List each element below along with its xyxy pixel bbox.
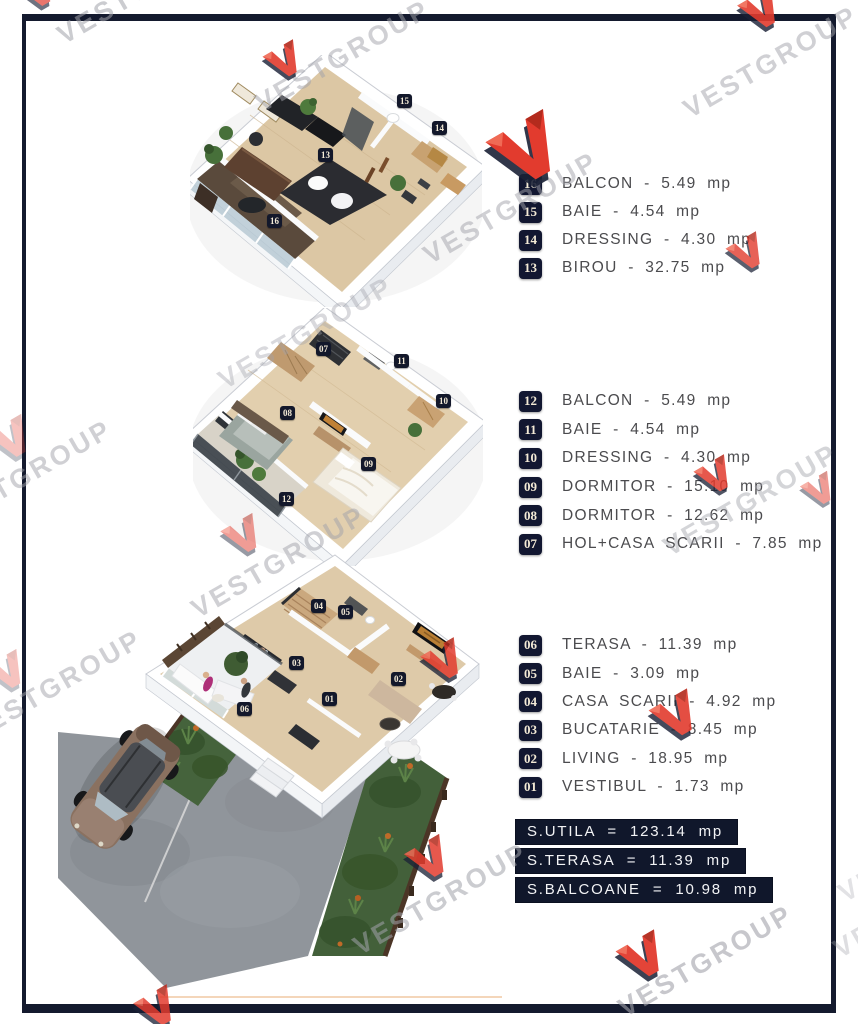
room-label: BAIE - 4.54 mp xyxy=(562,203,700,221)
legend-ground-floor: 06 TERASA - 11.39 mp 05 BAIE - 3.09 mp 0… xyxy=(519,631,776,801)
floor-plan-upper: 13 14 15 16 xyxy=(190,55,482,307)
watermark-text: VESTGROUP xyxy=(678,0,858,124)
room-label: DRESSING - 4.30 mp xyxy=(562,449,751,467)
room-number-badge: 01 xyxy=(519,777,542,798)
room-label: VESTIBUL - 1.73 mp xyxy=(562,778,745,796)
room-label: BUCATARIE - 8.45 mp xyxy=(562,721,758,739)
watermark-text: VESTGROUP xyxy=(828,840,858,964)
room-number-badge: 03 xyxy=(519,720,542,741)
legend-row: 03 BUCATARIE - 8.45 mp xyxy=(519,716,776,744)
room-number-badge: 10 xyxy=(519,448,542,469)
watermark-text: VESTGROUP xyxy=(613,899,798,1023)
vestgroup-logo-icon xyxy=(0,414,41,471)
room-number-badge: 09 xyxy=(519,477,542,498)
room-number-badge: 15 xyxy=(519,202,542,223)
watermark-text: VESTGROUP xyxy=(52,0,237,50)
room-label: LIVING - 18.95 mp xyxy=(562,750,728,768)
watermark-text: VESTGROUP xyxy=(833,784,858,908)
room-number-badge: 02 xyxy=(519,748,542,769)
flyer-page: 13 14 15 16 xyxy=(0,0,858,1024)
legend-upper-floor: 16 BALCON - 5.49 mp 15 BAIE - 4.54 mp 14… xyxy=(519,170,751,282)
room-marker-07: 07 xyxy=(316,342,331,356)
room-marker-15: 15 xyxy=(397,94,412,108)
room-marker-08: 08 xyxy=(280,406,295,420)
room-label: DORMITOR - 12.62 mp xyxy=(562,507,764,525)
legend-row: 04 CASA SCARII - 4.92 mp xyxy=(519,688,776,716)
room-label: BAIE - 3.09 mp xyxy=(562,665,700,683)
legend-row: 05 BAIE - 3.09 mp xyxy=(519,659,776,687)
room-marker-11: 11 xyxy=(394,354,409,368)
legend-row: 01 VESTIBUL - 1.73 mp xyxy=(519,773,776,801)
legend-row: 10 DRESSING - 4.30 mp xyxy=(519,444,823,473)
vestgroup-logo-icon xyxy=(11,0,64,19)
room-marker-01: 01 xyxy=(322,692,337,706)
watermark-text: VESTGROUP xyxy=(0,414,117,538)
legend-row: 12 BALCON - 5.49 mp xyxy=(519,387,823,416)
room-label: CASA SCARII - 4.92 mp xyxy=(562,693,776,711)
room-marker-02: 02 xyxy=(391,672,406,686)
vestgroup-logo-icon xyxy=(0,648,35,700)
legend-row: 11 BAIE - 4.54 mp xyxy=(519,416,823,445)
room-label: BIROU - 32.75 mp xyxy=(562,259,725,277)
divider-line xyxy=(160,996,502,998)
room-number-badge: 12 xyxy=(519,391,542,412)
room-marker-13: 13 xyxy=(318,148,333,162)
room-marker-14: 14 xyxy=(432,121,447,135)
room-number-badge: 06 xyxy=(519,635,542,656)
room-label: BALCON - 5.49 mp xyxy=(562,392,731,410)
floor-plan-middle-illustration xyxy=(193,308,483,566)
floor-plan-middle: 07 08 09 10 11 12 xyxy=(193,308,483,566)
room-marker-05: 05 xyxy=(338,605,353,619)
room-number-badge: 07 xyxy=(519,534,542,555)
vestgroup-logo-icon xyxy=(734,0,789,40)
room-label: BALCON - 5.49 mp xyxy=(562,175,731,193)
legend-row: 02 LIVING - 18.95 mp xyxy=(519,745,776,773)
room-label: HOL+CASA SCARII - 7.85 mp xyxy=(562,535,823,553)
room-label: BAIE - 4.54 mp xyxy=(562,421,700,439)
area-summary: S.UTILA = 123.14 mp S.TERASA = 11.39 mp … xyxy=(516,820,772,907)
room-number-badge: 05 xyxy=(519,663,542,684)
room-marker-16: 16 xyxy=(267,214,282,228)
floor-plan-ground: 01 02 03 04 05 06 xyxy=(50,552,480,1002)
room-marker-12: 12 xyxy=(279,492,294,506)
legend-row: 14 DRESSING - 4.30 mp xyxy=(519,226,751,254)
room-marker-10: 10 xyxy=(436,394,451,408)
legend-row: 06 TERASA - 11.39 mp xyxy=(519,631,776,659)
room-number-badge: 14 xyxy=(519,230,542,251)
room-label: DORMITOR - 15.10 mp xyxy=(562,478,764,496)
floor-plan-ground-illustration xyxy=(50,552,480,1002)
summary-terrace-area: S.TERASA = 11.39 mp xyxy=(516,849,745,873)
legend-row: 09 DORMITOR - 15.10 mp xyxy=(519,473,823,502)
room-marker-03: 03 xyxy=(289,656,304,670)
summary-usable-area: S.UTILA = 123.14 mp xyxy=(516,820,737,844)
legend-row: 13 BIROU - 32.75 mp xyxy=(519,254,751,282)
room-number-badge: 13 xyxy=(519,258,542,279)
legend-middle-floor: 12 BALCON - 5.49 mp 11 BAIE - 4.54 mp 10… xyxy=(519,387,823,559)
summary-balconies-area: S.BALCOANE = 10.98 mp xyxy=(516,878,772,902)
room-label: DRESSING - 4.30 mp xyxy=(562,231,751,249)
room-marker-06: 06 xyxy=(237,702,252,716)
room-marker-04: 04 xyxy=(311,599,326,613)
room-marker-09: 09 xyxy=(361,457,376,471)
vestgroup-logo-icon xyxy=(612,929,676,991)
legend-row: 08 DORMITOR - 12.62 mp xyxy=(519,501,823,530)
room-number-badge: 11 xyxy=(519,419,542,440)
room-number-badge: 16 xyxy=(519,174,542,195)
legend-row: 15 BAIE - 4.54 mp xyxy=(519,198,751,226)
room-number-badge: 04 xyxy=(519,691,542,712)
room-number-badge: 08 xyxy=(519,505,542,526)
floor-plan-upper-illustration xyxy=(190,55,482,307)
room-label: TERASA - 11.39 mp xyxy=(562,636,738,654)
legend-row: 16 BALCON - 5.49 mp xyxy=(519,170,751,198)
legend-row: 07 HOL+CASA SCARII - 7.85 mp xyxy=(519,530,823,559)
